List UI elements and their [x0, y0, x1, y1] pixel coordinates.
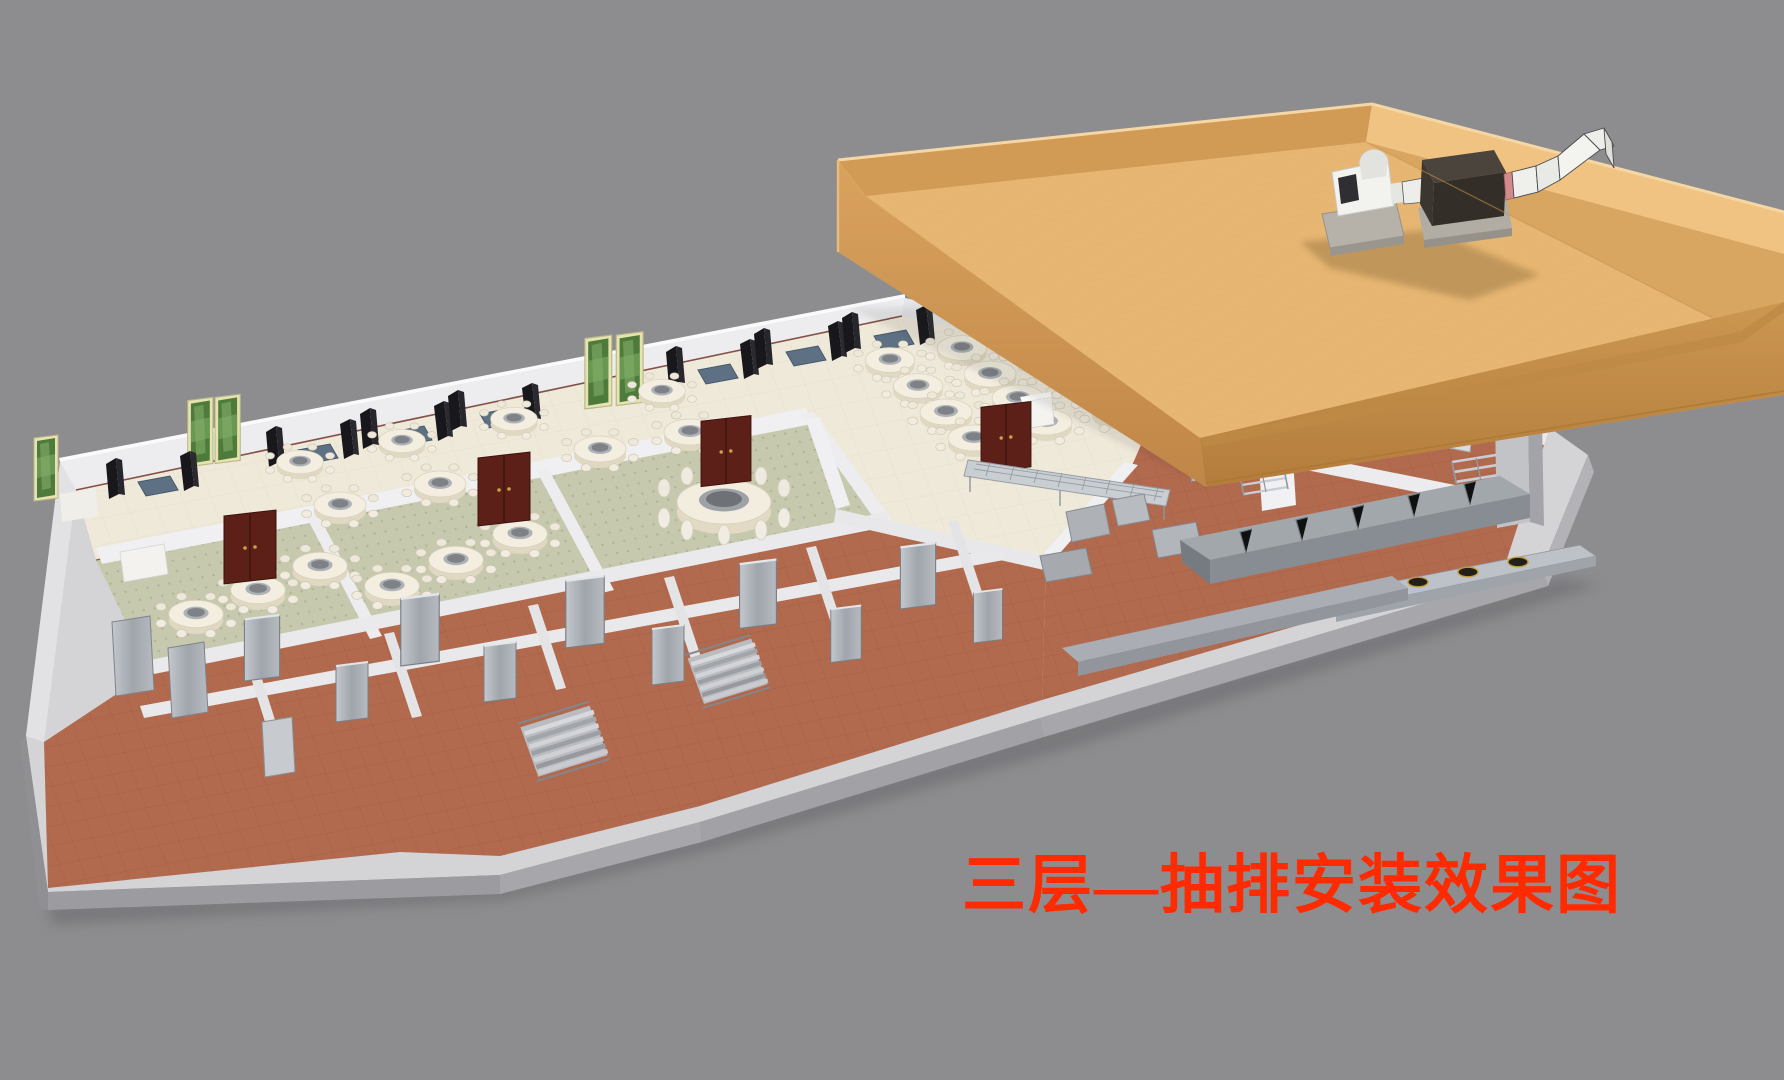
render-canvas: 三层—抽排安装效果图 — [0, 0, 1784, 1080]
caption-title: 三层—抽排安装效果图 — [962, 852, 1642, 919]
landscape-picture — [34, 435, 58, 501]
silencer-box — [1420, 150, 1506, 226]
